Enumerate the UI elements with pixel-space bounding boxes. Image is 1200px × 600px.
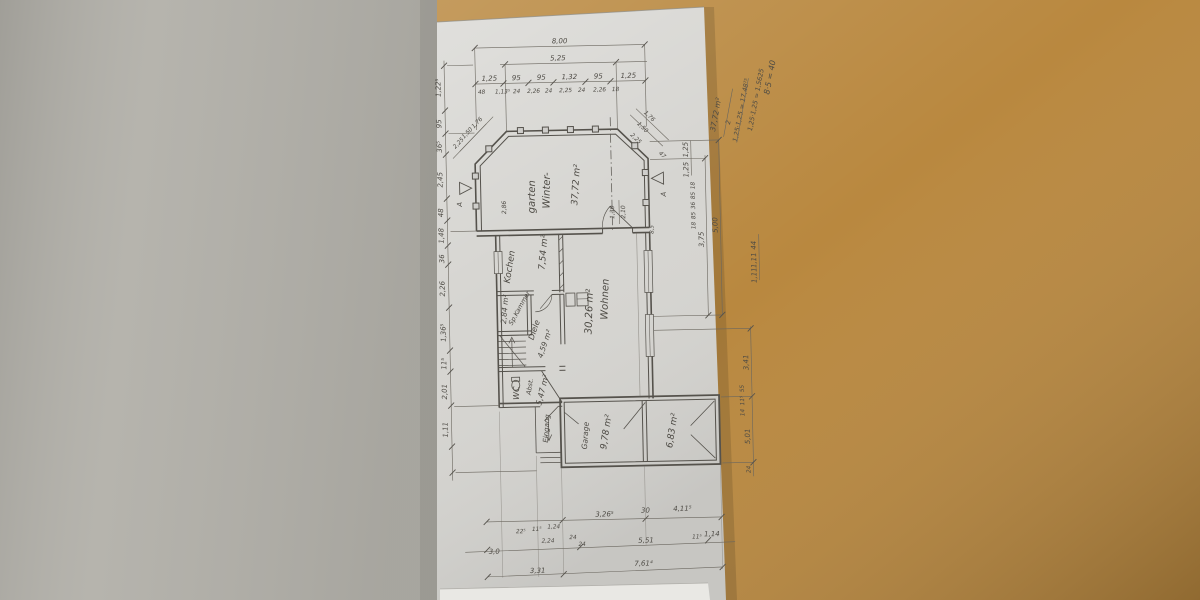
dim: 1,24: [547, 524, 560, 530]
dim: 1,11: [750, 267, 758, 283]
dim: 48: [437, 208, 445, 218]
glazing-post: [542, 127, 548, 133]
dim: 24: [747, 465, 753, 473]
glazing-post: [517, 128, 523, 134]
section-letter-right: A: [660, 191, 668, 197]
door-note-width: 1,30: [609, 205, 616, 219]
glazing-post: [472, 173, 478, 179]
floorplan-photo: Winter- garten 37,72 m² Kochen 7,54 m² S…: [0, 0, 1200, 600]
dim: 1,25: [620, 72, 636, 80]
dim: 1,25: [481, 75, 497, 83]
dim: 1,48: [437, 227, 445, 243]
dim: 3,31: [530, 567, 546, 575]
wc-label: WC: [512, 386, 521, 400]
dim: 3,26⁵: [595, 510, 614, 518]
dim: 1,25: [682, 141, 690, 157]
dim: 1,25: [682, 161, 690, 177]
dim: 5,00: [711, 217, 719, 233]
dim: 24: [578, 542, 586, 548]
dim: 24: [545, 88, 553, 94]
dim: 1,13⁵: [495, 88, 511, 95]
dim: 2,45: [436, 171, 444, 187]
glazing-post: [592, 126, 598, 132]
dim: 1,14: [704, 530, 720, 538]
dim: 14: [740, 408, 746, 416]
dim: 11⁵: [692, 533, 703, 540]
glazing-post: [473, 203, 479, 209]
gray-surface-shading: [0, 0, 437, 600]
dim: 44: [750, 241, 758, 250]
dim: 11⁵: [532, 526, 543, 533]
section-letter-left: A: [456, 202, 464, 208]
dim: 11⁵: [440, 358, 448, 370]
dim: 3,41: [742, 355, 750, 371]
dim: 36: [691, 201, 697, 209]
dim: 22⁵: [516, 528, 527, 535]
dim: 24: [569, 535, 577, 541]
dim: 1,22⁵: [434, 78, 442, 97]
garage-label: Garage: [580, 421, 591, 449]
dim: 3,0: [489, 548, 501, 556]
dim: 95: [512, 74, 522, 82]
dim: 7,61⁴: [634, 559, 653, 567]
dim: 2,01: [441, 384, 449, 400]
wohnen-area: 30,26 m²: [584, 289, 596, 335]
dim: 1,36⁵: [439, 323, 447, 342]
dim: 2,24: [542, 538, 555, 544]
dim: 36: [438, 254, 446, 264]
dim: 1,11: [442, 422, 450, 438]
dim: 48: [478, 90, 486, 96]
dim: 55: [740, 384, 746, 392]
dim: 85: [691, 211, 697, 219]
dim: 18: [691, 181, 697, 189]
dim-inner: 5,25: [550, 54, 566, 62]
dim: 95: [594, 72, 604, 80]
dim: 2,25: [559, 88, 572, 94]
dim: 11⁵: [739, 395, 746, 406]
dim: 1,32: [561, 73, 577, 81]
wall-note: 8,5: [649, 224, 655, 233]
dim: 85: [691, 191, 697, 199]
dim: 24: [578, 88, 586, 94]
dim: 4,11⁵: [673, 505, 692, 513]
dim: 5,01: [744, 429, 752, 445]
left-wall-dim: 2,86: [501, 201, 508, 215]
dim: 2,26: [593, 87, 606, 93]
glazing-post: [642, 169, 648, 175]
wohnen-label: Wohnen: [599, 278, 611, 319]
dim: 18: [612, 87, 620, 93]
dim: 36⁵: [436, 141, 444, 153]
dim: 18: [691, 221, 697, 229]
wintergarten-label-2: garten: [527, 180, 538, 213]
dim: 24: [513, 89, 521, 95]
dim: 2,26: [527, 89, 540, 95]
wintergarten-label-1: Winter-: [541, 172, 553, 209]
dim-overall: 8,00: [552, 37, 568, 45]
dim: 2,26: [439, 280, 447, 296]
door-note-height: 2,10: [620, 205, 627, 219]
dim: 95: [537, 74, 547, 82]
glazing-post: [486, 146, 492, 152]
dim: 3,75: [698, 231, 706, 247]
glazing-post: [643, 199, 649, 205]
dim: 1,11: [750, 252, 758, 268]
dim: 95: [435, 119, 443, 129]
glazing-post: [567, 126, 573, 132]
